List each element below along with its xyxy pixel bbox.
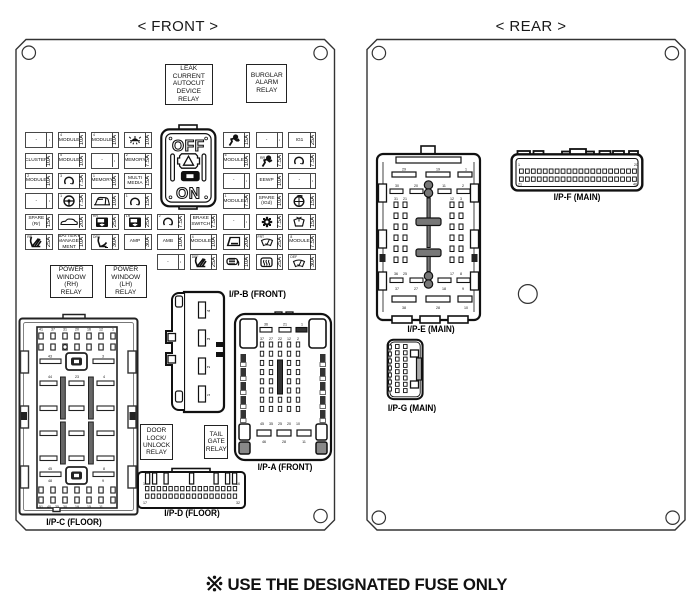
- svg-text:20: 20: [414, 184, 418, 188]
- svg-text:45: 45: [48, 467, 52, 471]
- svg-text:12: 12: [99, 328, 103, 332]
- svg-text:21: 21: [283, 323, 287, 327]
- svg-text:3: 3: [460, 197, 462, 201]
- svg-text:25: 25: [403, 272, 407, 276]
- svg-text:46: 46: [262, 440, 266, 444]
- svg-text:19: 19: [436, 168, 440, 172]
- svg-text:41: 41: [39, 328, 43, 332]
- svg-text:36: 36: [264, 323, 268, 327]
- svg-text:31: 31: [63, 328, 67, 332]
- svg-text:36: 36: [394, 272, 398, 276]
- svg-text:23: 23: [75, 375, 79, 379]
- svg-text:20: 20: [287, 422, 291, 426]
- svg-text:12: 12: [450, 197, 454, 201]
- svg-text:1: 1: [112, 328, 114, 332]
- svg-text:12: 12: [287, 337, 291, 341]
- svg-text:10: 10: [464, 306, 468, 310]
- svg-text:37: 37: [260, 337, 264, 341]
- svg-text:35: 35: [55, 505, 59, 509]
- svg-text:21: 21: [518, 183, 522, 187]
- svg-text:11: 11: [99, 505, 103, 509]
- svg-text:16: 16: [87, 328, 91, 332]
- svg-text:3: 3: [102, 355, 104, 359]
- svg-text:37: 37: [395, 287, 399, 291]
- svg-text:10: 10: [296, 422, 300, 426]
- svg-text:38: 38: [402, 306, 406, 310]
- svg-text:2: 2: [462, 184, 464, 188]
- svg-text:4: 4: [103, 375, 105, 379]
- svg-text:9: 9: [102, 479, 104, 483]
- svg-text:31: 31: [394, 197, 398, 201]
- svg-text:15: 15: [87, 505, 91, 509]
- svg-text:16: 16: [236, 482, 240, 486]
- svg-text:22: 22: [278, 337, 282, 341]
- svg-text:21: 21: [403, 197, 407, 201]
- svg-text:1: 1: [518, 163, 520, 167]
- svg-text:11: 11: [302, 440, 306, 444]
- svg-text:20: 20: [634, 163, 638, 167]
- svg-text:30: 30: [63, 505, 67, 509]
- svg-text:1: 1: [465, 168, 467, 172]
- svg-text:RR: RR: [260, 156, 266, 160]
- svg-text:37: 37: [51, 328, 55, 332]
- svg-text:30: 30: [395, 184, 399, 188]
- svg-text:20: 20: [75, 328, 79, 332]
- svg-text:11: 11: [442, 184, 446, 188]
- svg-text:27: 27: [269, 337, 273, 341]
- svg-text:40: 40: [47, 505, 51, 509]
- svg-text:1: 1: [301, 323, 303, 327]
- svg-text:2: 2: [297, 337, 299, 341]
- svg-text:51: 51: [39, 505, 43, 509]
- svg-text:27: 27: [414, 287, 418, 291]
- svg-text:1: 1: [143, 482, 145, 486]
- svg-text:OFF: OFF: [172, 138, 205, 155]
- svg-text:8: 8: [460, 272, 462, 276]
- svg-text:32: 32: [236, 501, 240, 505]
- svg-text:25: 25: [278, 422, 282, 426]
- svg-text:19: 19: [75, 505, 79, 509]
- svg-text:9: 9: [462, 287, 464, 291]
- svg-text:28: 28: [436, 306, 440, 310]
- svg-text:43: 43: [48, 355, 52, 359]
- svg-text:8: 8: [103, 467, 105, 471]
- svg-text:29: 29: [402, 168, 406, 172]
- svg-text:17: 17: [143, 501, 147, 505]
- svg-text:17: 17: [450, 272, 454, 276]
- svg-text:40: 40: [633, 183, 637, 187]
- svg-text:35: 35: [269, 422, 273, 426]
- svg-text:28: 28: [282, 440, 286, 444]
- svg-text:45: 45: [260, 422, 264, 426]
- svg-text:18: 18: [442, 287, 446, 291]
- svg-text:44: 44: [48, 375, 52, 379]
- svg-text:ON: ON: [176, 186, 200, 203]
- svg-text:48: 48: [48, 479, 52, 483]
